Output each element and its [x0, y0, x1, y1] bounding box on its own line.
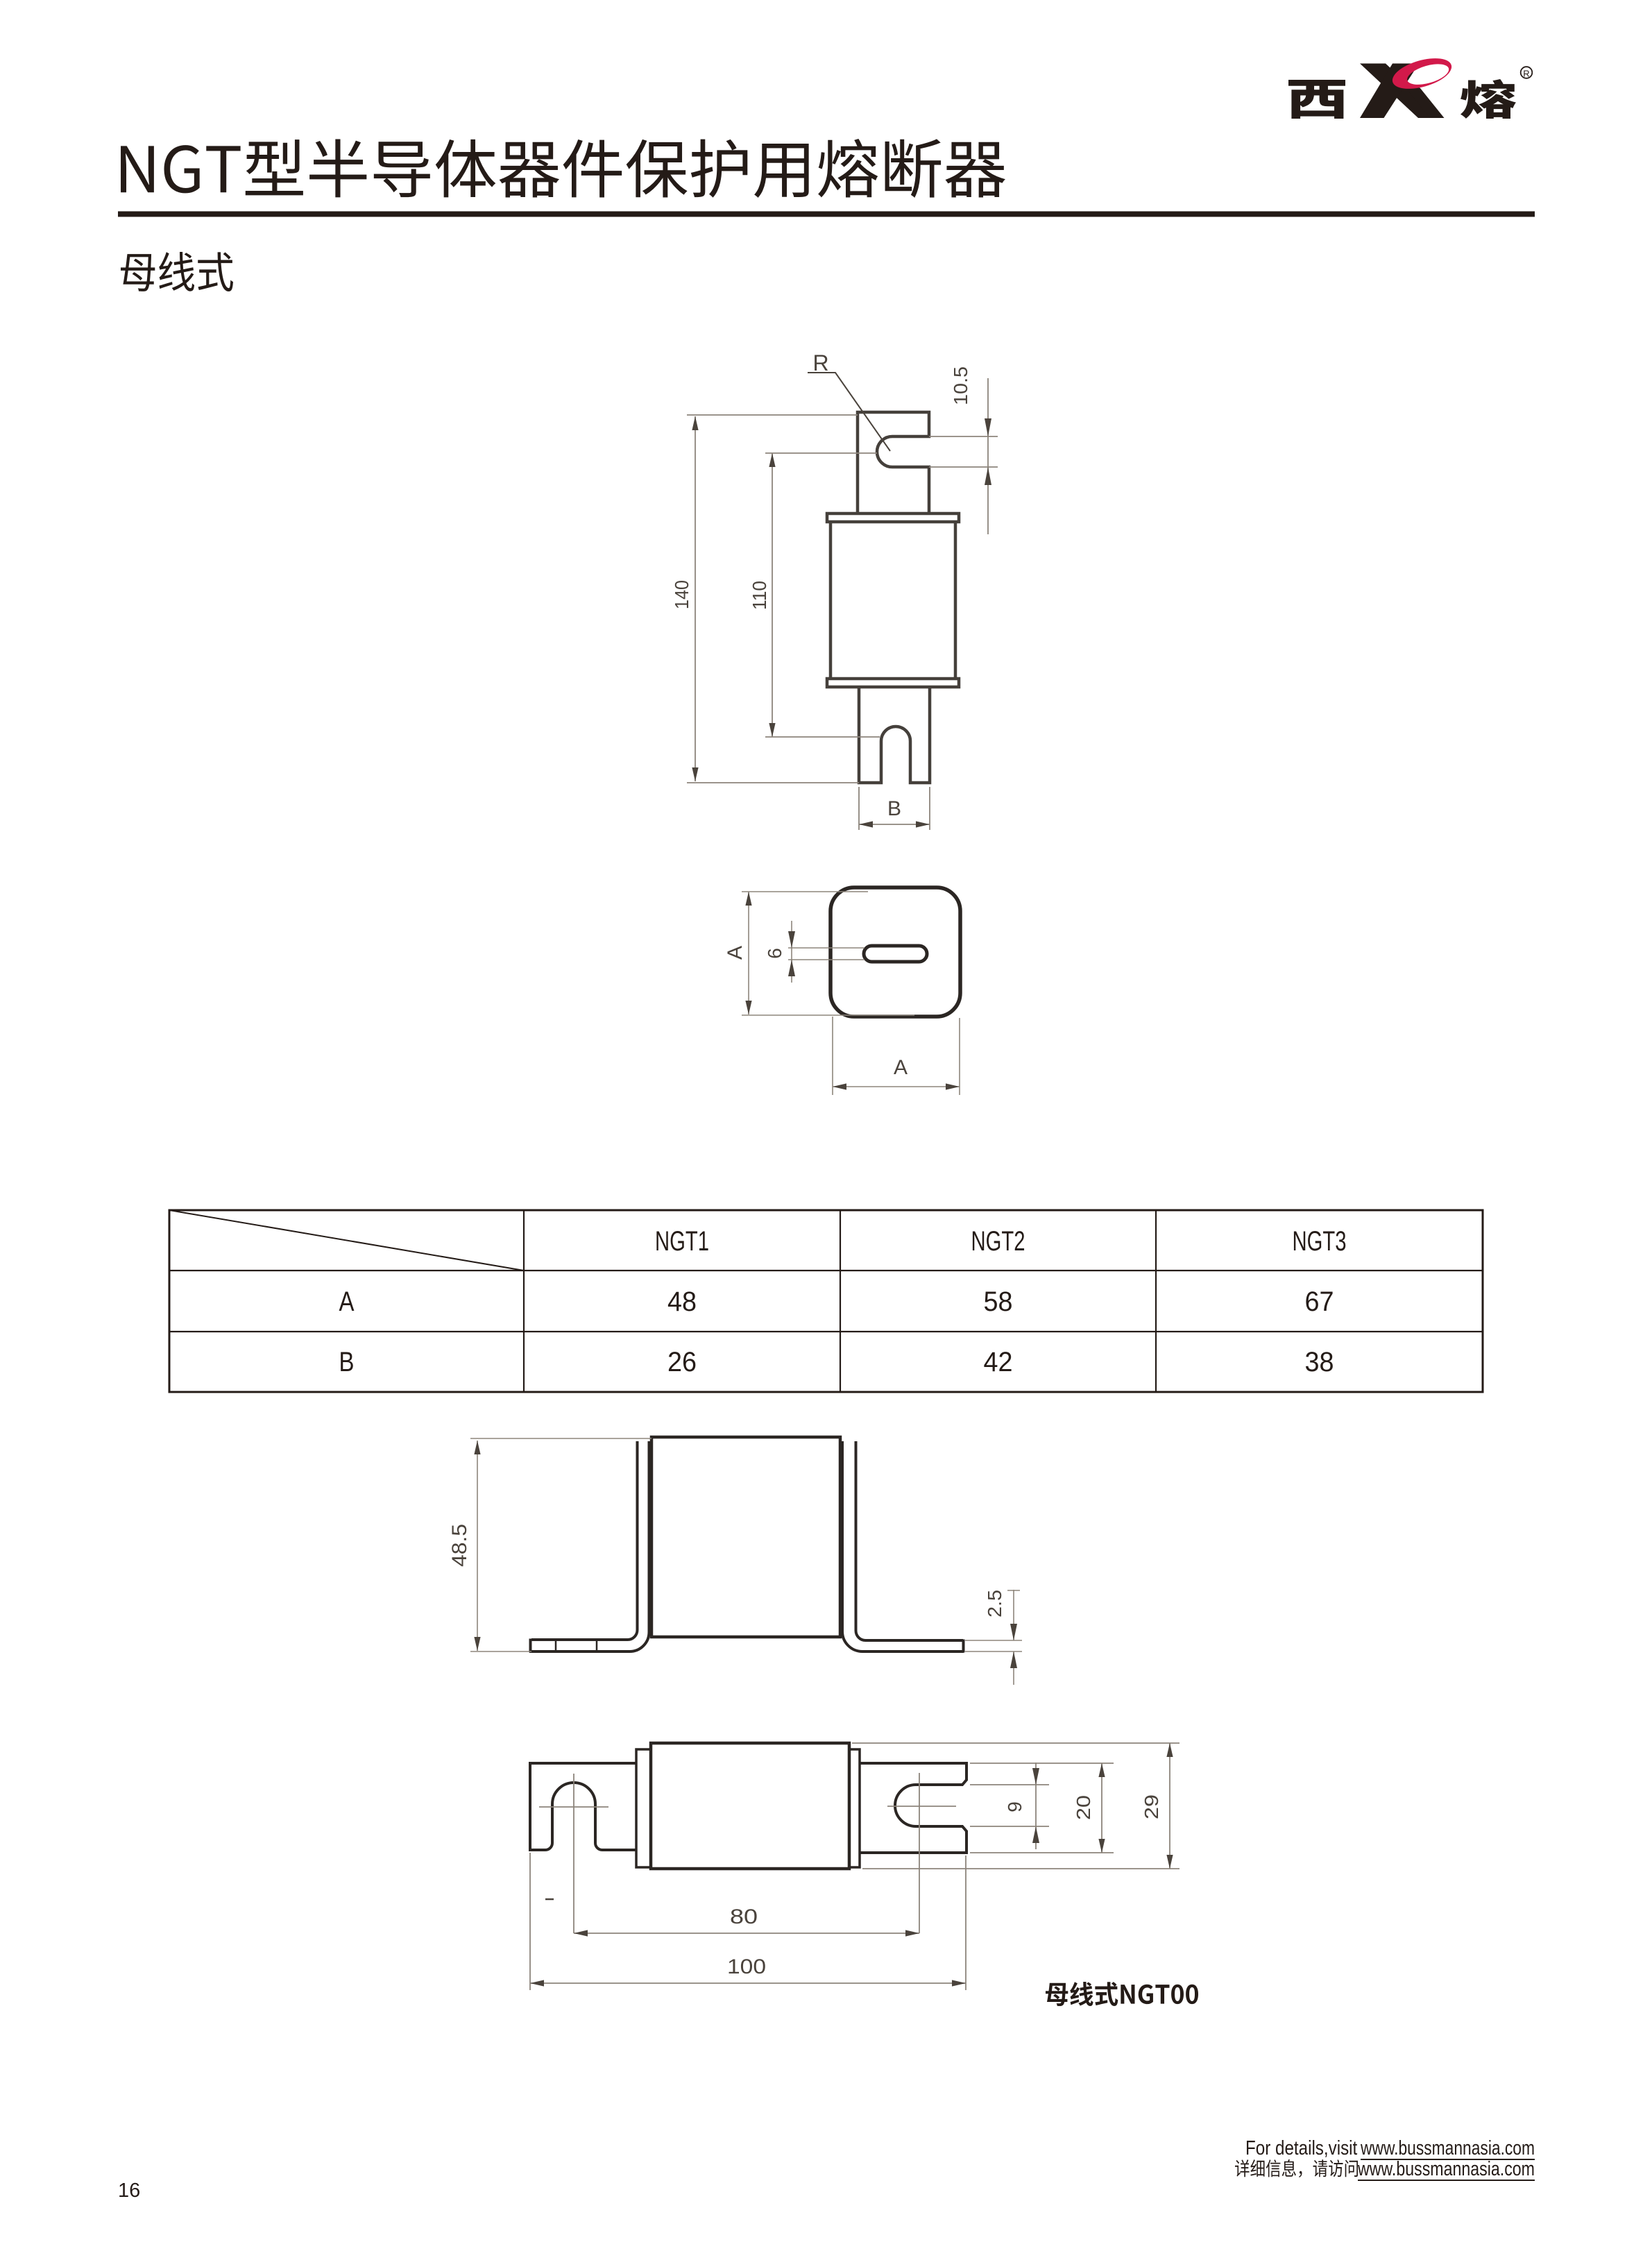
svg-text:For details,visit: For details,visit — [1245, 2137, 1362, 2159]
svg-text:A: A — [339, 1286, 355, 1317]
svg-text:42: 42 — [984, 1347, 1013, 1377]
svg-text:20: 20 — [1073, 1795, 1094, 1820]
svg-text:NGT2: NGT2 — [971, 1226, 1025, 1257]
svg-text:140: 140 — [671, 580, 692, 609]
svg-text:6: 6 — [764, 948, 785, 959]
svg-text:R: R — [812, 350, 828, 375]
svg-text:www.bussmannasia.com: www.bussmannasia.com — [1360, 2137, 1535, 2159]
svg-text:29: 29 — [1141, 1794, 1162, 1819]
svg-text:B: B — [887, 797, 901, 820]
svg-text:80: 80 — [730, 1905, 758, 1928]
svg-text:38: 38 — [1305, 1347, 1334, 1377]
svg-text:2.5: 2.5 — [984, 1590, 1005, 1617]
svg-text:10.5: 10.5 — [950, 366, 971, 405]
svg-text:26: 26 — [667, 1347, 697, 1377]
svg-text:110: 110 — [749, 581, 770, 610]
svg-text:R: R — [1523, 69, 1529, 79]
svg-text:B: B — [339, 1347, 355, 1377]
svg-text:NGT3: NGT3 — [1293, 1226, 1347, 1257]
svg-text:48.5: 48.5 — [448, 1524, 471, 1567]
svg-text:9: 9 — [1004, 1801, 1025, 1812]
svg-text:A: A — [724, 946, 747, 960]
svg-text:67: 67 — [1305, 1286, 1334, 1317]
svg-text:www.bussmannasia.com: www.bussmannasia.com — [1357, 2158, 1535, 2180]
svg-text:NGT1: NGT1 — [655, 1226, 709, 1257]
svg-text:58: 58 — [984, 1286, 1013, 1317]
svg-text:100: 100 — [727, 1955, 766, 1978]
svg-text:48: 48 — [667, 1286, 697, 1317]
svg-text:16: 16 — [118, 2180, 140, 2202]
svg-text:A: A — [894, 1056, 908, 1079]
